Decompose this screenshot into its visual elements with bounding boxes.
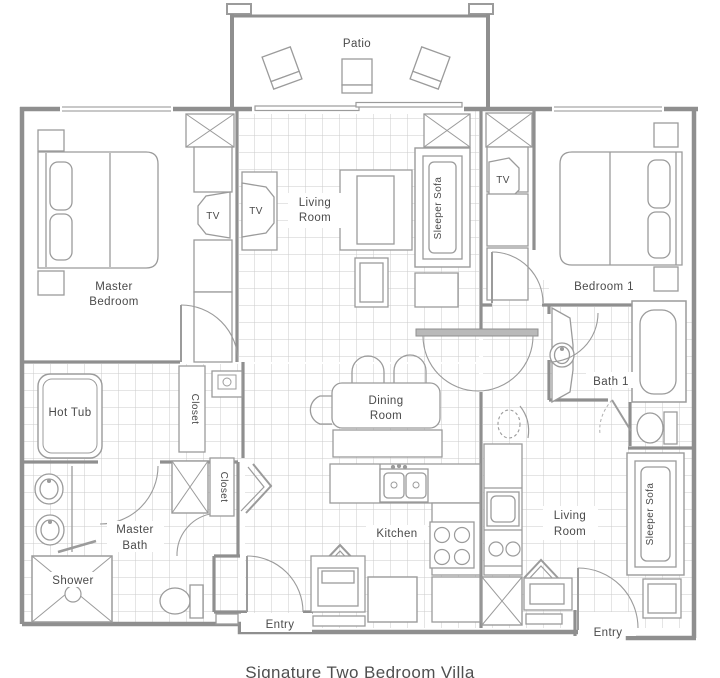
master-bedroom [38, 130, 158, 295]
closet-label: Closet [189, 394, 200, 425]
bedroom-1-label: Bedroom 1 [574, 281, 634, 293]
sleeper-sofa-label: Sleeper Sofa [645, 483, 656, 546]
burner-icon [506, 542, 520, 556]
tv-label: TV [496, 175, 510, 186]
patio-pillar-icon [469, 4, 493, 14]
window-icon [552, 103, 664, 114]
patio-chair-icon [410, 47, 450, 89]
drain-icon [65, 586, 81, 602]
nightstand-icon [38, 130, 64, 151]
pillow-icon [648, 212, 670, 258]
window-icon [60, 103, 173, 114]
side-table-icon [415, 273, 458, 307]
sleeper-sofa-label: Sleeper Sofa [433, 177, 444, 240]
patio [227, 4, 493, 107]
pillow-icon [50, 214, 72, 260]
living-room-main-label-1: Living [299, 197, 331, 209]
refrigerator-icon [368, 577, 417, 622]
tv-label: TV [249, 206, 263, 217]
patio-chair-icon [262, 47, 302, 89]
living-room-suite-label-2: Room [554, 526, 586, 538]
pillow-icon [50, 162, 72, 210]
bench-icon [333, 430, 442, 457]
toilet-icon [637, 413, 663, 443]
windows [60, 101, 664, 114]
living-room-main-label-2: Room [299, 212, 331, 224]
dining-room-label-1: Dining [368, 395, 403, 407]
toilet-icon [160, 588, 190, 614]
floorplan-caption: Signature Two Bedroom Villa [0, 663, 720, 678]
burner-icon [489, 542, 503, 556]
master-bedroom-label-1: Master [95, 281, 133, 293]
master-tv-wall [186, 114, 234, 362]
hot-tub-label: Hot Tub [48, 407, 91, 419]
pillow-icon [648, 160, 670, 208]
floorplan-page: Patio Master Bedroom TV [0, 0, 720, 678]
tv-label: TV [206, 211, 220, 222]
entry-label: Entry [266, 619, 295, 631]
bedroom-1 [487, 123, 682, 300]
kitchen-label: Kitchen [376, 528, 417, 540]
patio-label: Patio [343, 38, 371, 50]
nightstand-icon [38, 271, 64, 295]
master-bedroom-label-2: Bedroom [89, 296, 138, 308]
dining-room-label-2: Room [370, 410, 402, 422]
shower-label: Shower [52, 575, 93, 587]
living-room-suite-label-1: Living [554, 510, 586, 522]
entry-label: Entry [594, 627, 623, 639]
nightstand-icon [654, 123, 678, 147]
closet-label: Closet [218, 472, 229, 503]
patio-pillar-icon [227, 4, 251, 14]
nightstand-icon [654, 267, 678, 291]
master-bath-label-1: Master [116, 524, 154, 536]
patio-chair-icon [342, 59, 372, 93]
bath-1-label: Bath 1 [593, 376, 629, 388]
master-bath-label-2: Bath [122, 540, 147, 552]
floorplan-drawing: Patio Master Bedroom TV [0, 0, 720, 678]
